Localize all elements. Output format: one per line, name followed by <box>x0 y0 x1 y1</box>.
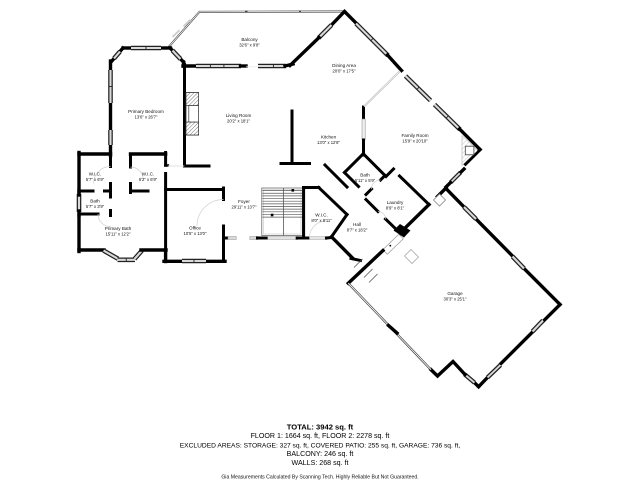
svg-text:5'7" x 6'9": 5'7" x 6'9" <box>86 177 105 182</box>
svg-text:Garage: Garage <box>447 291 463 296</box>
svg-text:Dining Area: Dining Area <box>332 63 356 68</box>
svg-text:8'7" x 18'2": 8'7" x 18'2" <box>347 228 368 233</box>
svg-text:6'2" x 6'9": 6'2" x 6'9" <box>139 177 158 182</box>
svg-text:Foyer: Foyer <box>238 199 250 204</box>
svg-text:32'6" x 9'8": 32'6" x 9'8" <box>239 43 260 48</box>
svg-text:15'9" x 20'10": 15'9" x 20'10" <box>402 139 428 144</box>
svg-text:TOTAL: 3942 sq. ft: TOTAL: 3942 sq. ft <box>287 423 354 432</box>
svg-text:Laundry: Laundry <box>387 200 404 205</box>
svg-text:FLOOR 1: 1664 sq. ft, FLOOR 2:: FLOOR 1: 1664 sq. ft, FLOOR 2: 2278 sq. … <box>251 432 390 440</box>
svg-text:W.I.C.: W.I.C. <box>142 171 155 176</box>
svg-text:BALCONY: 246 sq. ft: BALCONY: 246 sq. ft <box>287 450 354 458</box>
svg-text:Office: Office <box>189 226 201 231</box>
svg-text:EXCLUDED AREAS: STORAGE: 327 s: EXCLUDED AREAS: STORAGE: 327 sq. ft, COV… <box>180 442 461 449</box>
svg-text:5'7" x 3'9": 5'7" x 3'9" <box>86 204 105 209</box>
svg-text:Bath: Bath <box>360 173 370 178</box>
svg-text:Kitchen: Kitchen <box>321 134 337 139</box>
svg-text:30'3" x 25'1": 30'3" x 25'1" <box>444 297 467 302</box>
svg-text:5'11" x 5'9": 5'11" x 5'9" <box>355 178 376 183</box>
svg-text:Primary Bedroom: Primary Bedroom <box>128 109 164 114</box>
svg-text:15'11" x 12'2": 15'11" x 12'2" <box>106 232 131 237</box>
svg-text:8'0" x 8'11": 8'0" x 8'11" <box>311 218 332 223</box>
svg-text:Hall: Hall <box>353 222 361 227</box>
svg-text:Balcony: Balcony <box>241 37 258 42</box>
svg-text:Living Room: Living Room <box>226 113 252 118</box>
svg-text:W.I.C.: W.I.C. <box>89 171 102 176</box>
svg-text:13'0" x 12'8": 13'0" x 12'8" <box>317 140 340 145</box>
svg-text:8'9" x 8'1": 8'9" x 8'1" <box>386 206 405 211</box>
svg-text:WALLS: 268 sq. ft: WALLS: 268 sq. ft <box>292 459 349 467</box>
svg-text:20'0" x 17'5": 20'0" x 17'5" <box>333 69 356 74</box>
svg-text:Family Room: Family Room <box>401 133 428 138</box>
svg-text:W.I.C.: W.I.C. <box>315 213 328 218</box>
svg-text:Bath: Bath <box>90 199 100 204</box>
svg-text:Gia Measurements Calculated By: Gia Measurements Calculated By Scanning … <box>221 474 418 480</box>
svg-text:20'2" x 18'1": 20'2" x 18'1" <box>227 119 250 124</box>
svg-text:13'6" x 26'7": 13'6" x 26'7" <box>135 114 158 119</box>
svg-text:Primary Bath: Primary Bath <box>105 226 132 231</box>
svg-text:10'5" x 13'0": 10'5" x 13'0" <box>184 231 207 236</box>
svg-text:29'11" x 13'7": 29'11" x 13'7" <box>232 205 257 210</box>
